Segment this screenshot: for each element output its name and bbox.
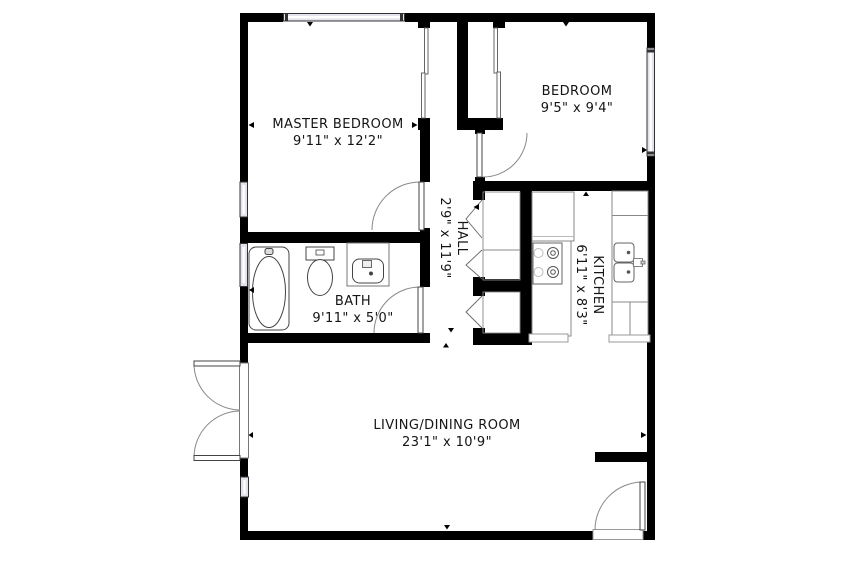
wall-segment xyxy=(418,13,430,28)
room-size: 9'11" x 5'0" xyxy=(312,311,393,328)
room-name: HALL xyxy=(452,197,469,278)
window-bedroom-right xyxy=(647,48,655,156)
room-label-kitchen: KITCHEN 6'11" x 8'3" xyxy=(571,244,605,325)
master-closet-sliding-doors xyxy=(422,28,429,118)
room-size: 2'9" x 11'9" xyxy=(435,197,452,278)
wall-segment xyxy=(493,13,505,28)
wall-segment xyxy=(420,130,430,182)
wall-segment xyxy=(647,13,655,48)
wall-segment xyxy=(520,191,532,345)
toilet-icon xyxy=(306,247,334,296)
floor-plan: MASTER BEDROOM 9'11" x 12'2" BEDROOM 9'5… xyxy=(0,0,864,576)
room-label-bath: BATH 9'11" x 5'0" xyxy=(312,294,393,328)
wall-segment xyxy=(457,118,503,130)
window-bath-left xyxy=(240,244,248,287)
double-entry-door xyxy=(194,361,249,461)
wall-segment xyxy=(240,458,248,477)
room-size: 6'11" x 8'3" xyxy=(571,244,588,325)
room-label-hall: HALL 2'9" x 11'9" xyxy=(435,197,469,278)
wall-segment xyxy=(240,232,430,243)
room-label-bedroom: BEDROOM 9'5" x 9'4" xyxy=(541,84,614,118)
wall-segment xyxy=(240,13,248,182)
window-master-left xyxy=(240,182,248,217)
bathtub-icon xyxy=(249,247,289,330)
vanity-sink-icon xyxy=(347,243,389,286)
floor-plan-drawing xyxy=(0,0,864,576)
stove-icon xyxy=(533,243,562,284)
room-label-master-bedroom: MASTER BEDROOM 9'11" x 12'2" xyxy=(272,117,403,151)
wall-segment xyxy=(457,13,468,130)
living-room-exterior-door xyxy=(593,482,645,540)
room-name: KITCHEN xyxy=(588,244,605,325)
wall-segment xyxy=(473,279,520,292)
room-name: BATH xyxy=(312,294,393,311)
hall-closets xyxy=(466,192,520,333)
bedroom-door xyxy=(477,133,527,177)
closet-bifold-door xyxy=(466,296,482,328)
room-size: 9'11" x 12'2" xyxy=(272,134,403,151)
refrigerator-icon xyxy=(532,192,574,241)
wall-segment xyxy=(405,13,655,22)
master-bedroom-door xyxy=(372,182,424,230)
bedroom-closet-sliding-doors xyxy=(494,28,501,118)
room-name: BEDROOM xyxy=(541,84,614,101)
wall-segment xyxy=(473,333,532,345)
window-master-top xyxy=(284,14,405,22)
room-name: MASTER BEDROOM xyxy=(272,117,403,134)
room-label-living-dining: LIVING/DINING ROOM 23'1" x 10'9" xyxy=(373,418,520,452)
room-size: 23'1" x 10'9" xyxy=(373,435,520,452)
wall-segment xyxy=(595,452,647,462)
room-name: LIVING/DINING ROOM xyxy=(373,418,520,435)
wall-segment xyxy=(420,243,430,287)
window-living-left xyxy=(241,477,249,497)
room-size: 9'5" x 9'4" xyxy=(541,101,614,118)
wall-segment xyxy=(418,118,430,130)
wall-segment xyxy=(240,531,593,540)
wall-segment xyxy=(240,287,248,363)
